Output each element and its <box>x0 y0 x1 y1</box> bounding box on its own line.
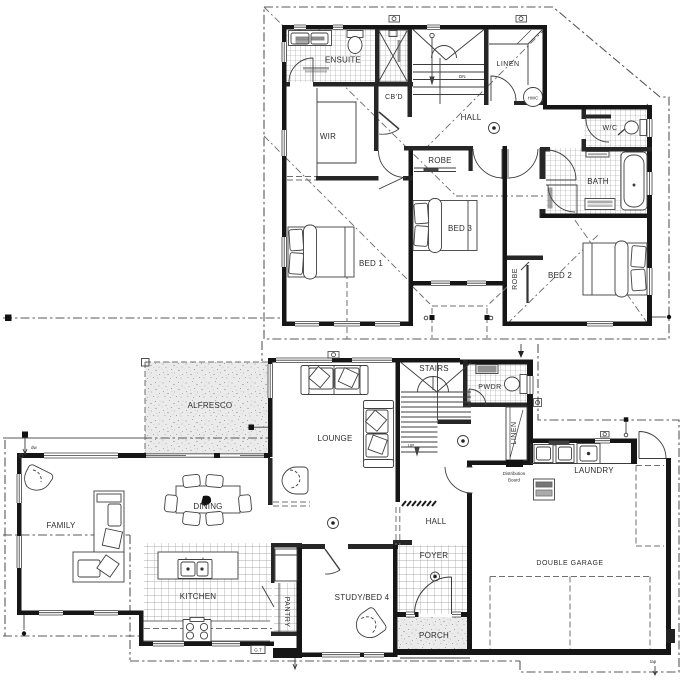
svg-text:STUDY/BED 4: STUDY/BED 4 <box>335 593 390 602</box>
svg-text:DOUBLE GARAGE: DOUBLE GARAGE <box>536 560 603 567</box>
svg-text:ROBE: ROBE <box>512 268 519 290</box>
svg-text:BED 1: BED 1 <box>359 259 383 268</box>
svg-text:BATH: BATH <box>587 177 609 186</box>
svg-text:HWC: HWC <box>528 96 539 101</box>
svg-text:HALL: HALL <box>461 113 482 122</box>
svg-text:dw: dw <box>31 445 38 450</box>
svg-text:Distribution: Distribution <box>503 471 526 476</box>
svg-text:ROBE: ROBE <box>428 156 451 165</box>
svg-text:LOUNGE: LOUNGE <box>318 434 353 443</box>
svg-text:LINEN: LINEN <box>496 61 519 68</box>
svg-text:ENSUITE: ENSUITE <box>325 56 361 65</box>
svg-text:ALFRESCO: ALFRESCO <box>188 401 233 410</box>
svg-text:LAUNDRY: LAUNDRY <box>574 466 614 475</box>
svg-text:BED 2: BED 2 <box>548 271 572 280</box>
svg-text:CB'D: CB'D <box>385 94 403 101</box>
svg-text:tap: tap <box>650 659 657 664</box>
svg-text:BED 3: BED 3 <box>448 224 472 233</box>
svg-text:PORCH: PORCH <box>419 631 449 640</box>
svg-text:FOYER: FOYER <box>420 551 449 560</box>
svg-text:UP: UP <box>408 443 414 448</box>
svg-text:FAMILY: FAMILY <box>46 521 76 530</box>
svg-text:W/C: W/C <box>602 125 617 132</box>
svg-text:KITCHEN: KITCHEN <box>180 592 217 601</box>
svg-text:WIR: WIR <box>320 132 336 141</box>
svg-text:PANTRY: PANTRY <box>283 597 290 628</box>
svg-text:DN: DN <box>459 74 466 79</box>
svg-text:Board: Board <box>508 478 521 483</box>
svg-text:G.T: G.T <box>254 648 262 653</box>
svg-text:DINING: DINING <box>193 502 222 511</box>
svg-text:STAIRS: STAIRS <box>419 364 449 373</box>
svg-text:LINEN: LINEN <box>511 421 518 444</box>
svg-text:HALL: HALL <box>426 517 447 526</box>
svg-text:PWDR: PWDR <box>478 384 501 391</box>
